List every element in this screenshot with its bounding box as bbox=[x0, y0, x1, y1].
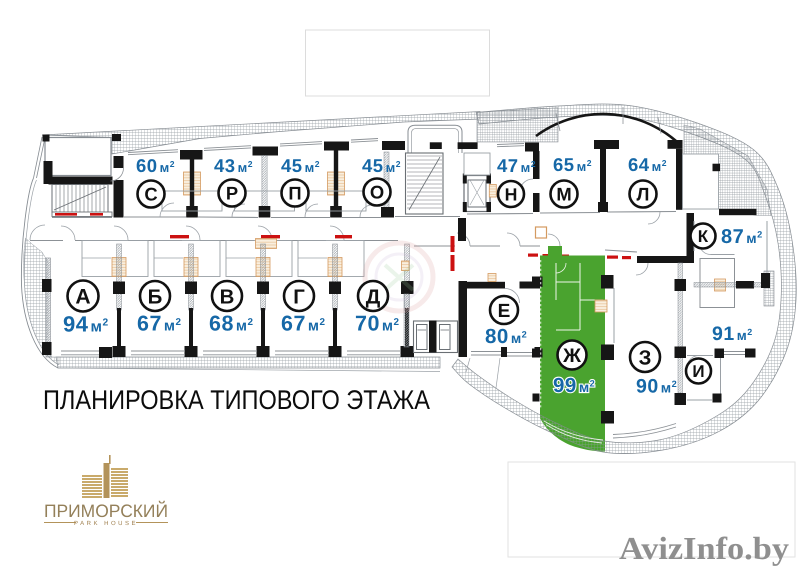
svg-text:AvizInfo.by: AvizInfo.by bbox=[619, 530, 789, 566]
svg-text:90м2: 90м2 bbox=[636, 376, 677, 398]
svg-text:М: М bbox=[556, 184, 571, 205]
svg-text:В: В bbox=[220, 286, 235, 308]
svg-text:И: И bbox=[692, 362, 704, 381]
svg-text:К: К bbox=[698, 227, 709, 246]
svg-text:Д: Д bbox=[366, 286, 381, 308]
svg-text:ПРИМОРСКИЙ: ПРИМОРСКИЙ bbox=[44, 500, 168, 521]
svg-text:47м2: 47м2 bbox=[497, 155, 536, 176]
svg-text:П: П bbox=[288, 183, 301, 204]
svg-text:Н: Н bbox=[505, 184, 518, 204]
svg-text:Г: Г bbox=[293, 286, 305, 308]
svg-text:87м2: 87м2 bbox=[721, 226, 763, 248]
svg-text:PARK HOUSE: PARK HOUSE bbox=[74, 520, 138, 527]
svg-text:Е: Е bbox=[498, 301, 511, 322]
svg-text:43м2: 43м2 bbox=[214, 155, 253, 176]
svg-text:Ж: Ж bbox=[562, 345, 581, 367]
svg-text:О: О bbox=[370, 182, 384, 203]
svg-text:Р: Р bbox=[226, 183, 238, 204]
svg-text:45м2: 45м2 bbox=[362, 155, 401, 176]
svg-text:64м2: 64м2 bbox=[628, 154, 667, 175]
svg-text:Б: Б bbox=[148, 286, 163, 308]
svg-text:65м2: 65м2 bbox=[553, 154, 592, 175]
svg-text:З: З bbox=[639, 347, 652, 369]
svg-text:60м2: 60м2 bbox=[136, 155, 175, 176]
svg-text:45м2: 45м2 bbox=[281, 155, 320, 176]
svg-text:91м2: 91м2 bbox=[712, 323, 753, 345]
svg-text:Л: Л bbox=[637, 184, 650, 205]
svg-text:А: А bbox=[75, 286, 90, 309]
svg-text:ПЛАНИРОВКА ТИПОВОГО ЭТАЖА: ПЛАНИРОВКА ТИПОВОГО ЭТАЖА bbox=[43, 385, 430, 415]
svg-text:С: С bbox=[144, 184, 157, 205]
